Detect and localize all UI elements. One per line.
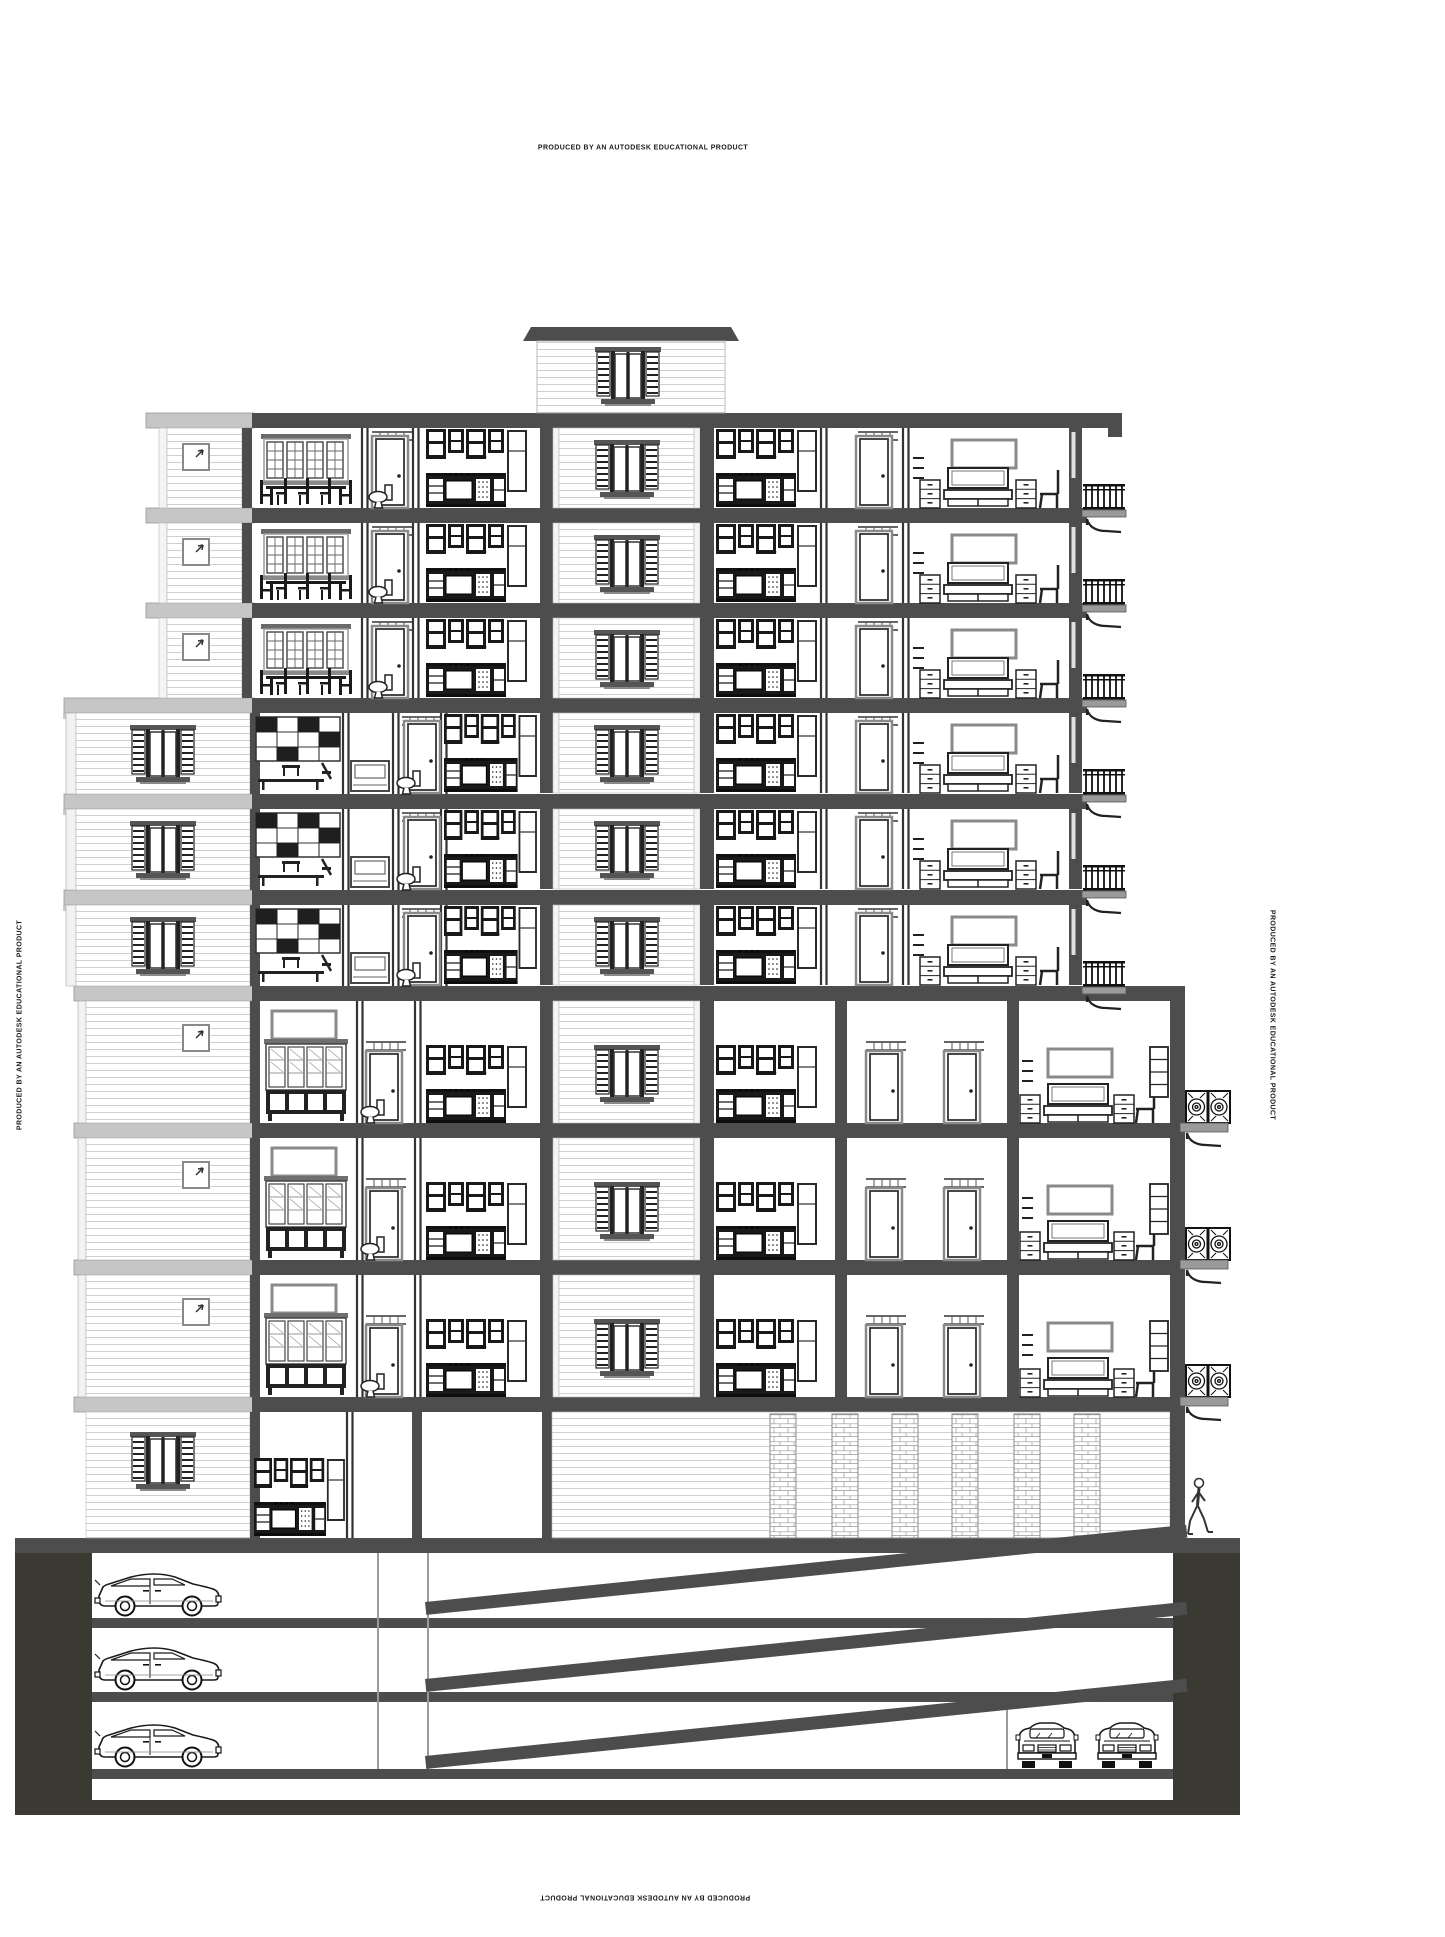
basement-column [427, 1543, 429, 1769]
roof-bulkhead [523, 327, 739, 413]
basement-column [377, 1553, 379, 1769]
basement-slab [92, 1769, 1173, 1779]
building-section-drawing [0, 0, 1445, 1937]
autodesk-watermark-bottom: PRODUCED BY AN AUTODESK EDUCATIONAL PROD… [540, 1894, 750, 1901]
autodesk-watermark-left: PRODUCED BY AN AUTODESK EDUCATIONAL PROD… [17, 920, 24, 1130]
drawing-sheet: PRODUCED BY AN AUTODESK EDUCATIONAL PROD… [0, 0, 1445, 1937]
autodesk-watermark-right: PRODUCED BY AN AUTODESK EDUCATIONAL PROD… [1269, 910, 1276, 1120]
autodesk-watermark-top: PRODUCED BY AN AUTODESK EDUCATIONAL PROD… [538, 145, 748, 152]
pedestrian [1188, 1479, 1213, 1535]
floor-10-ground [86, 1412, 1185, 1538]
basement-column [1006, 1702, 1008, 1769]
